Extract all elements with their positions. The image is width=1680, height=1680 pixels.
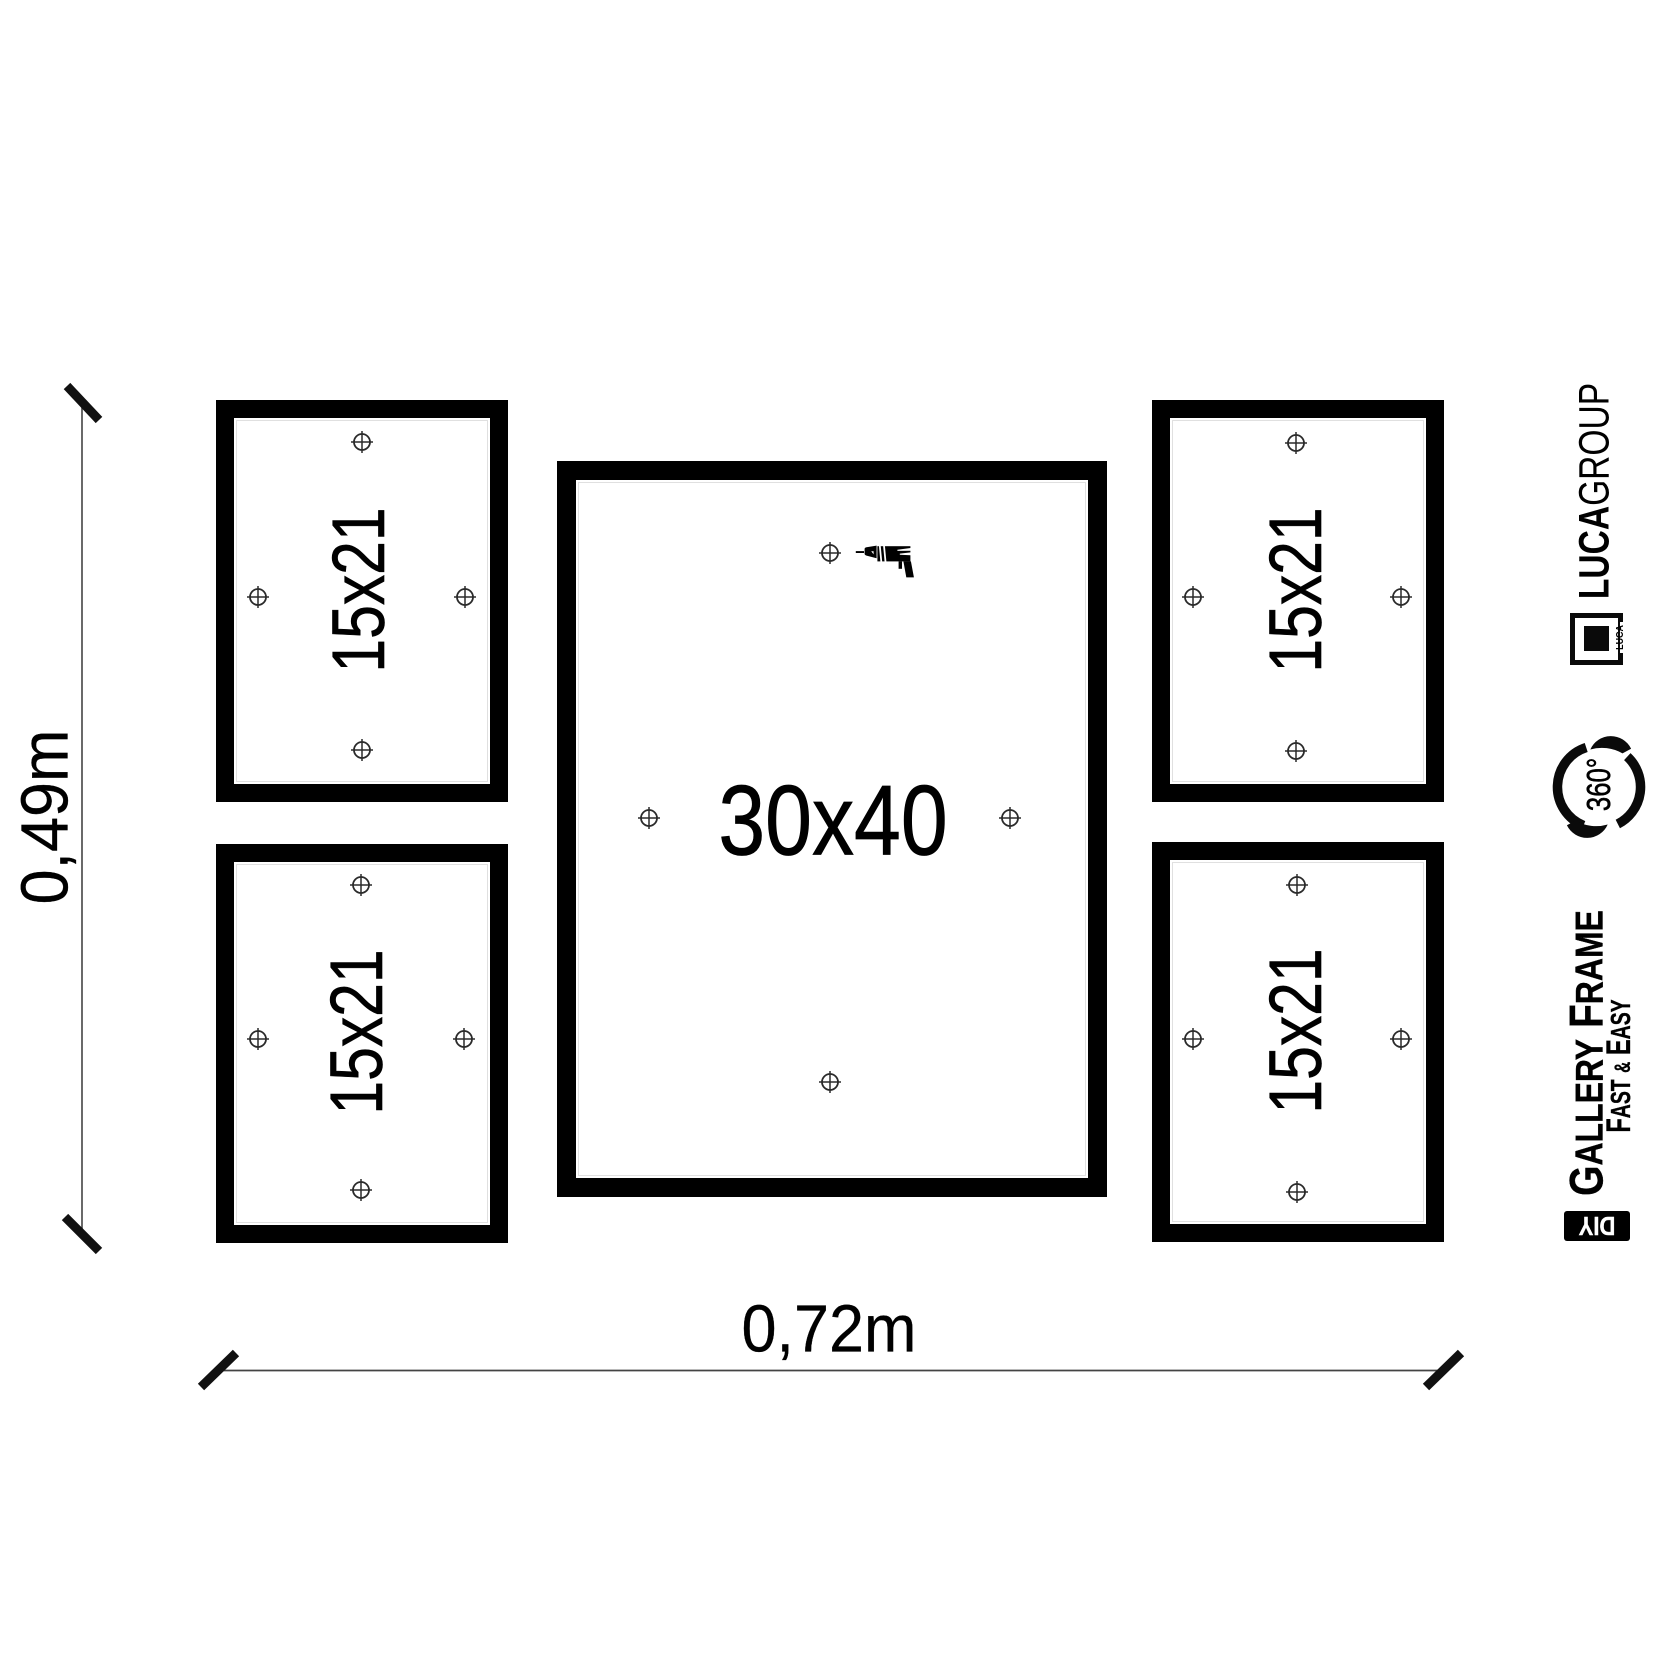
- svg-text:360°: 360°: [1581, 758, 1618, 811]
- svg-text:LUCA: LUCA: [1614, 625, 1626, 650]
